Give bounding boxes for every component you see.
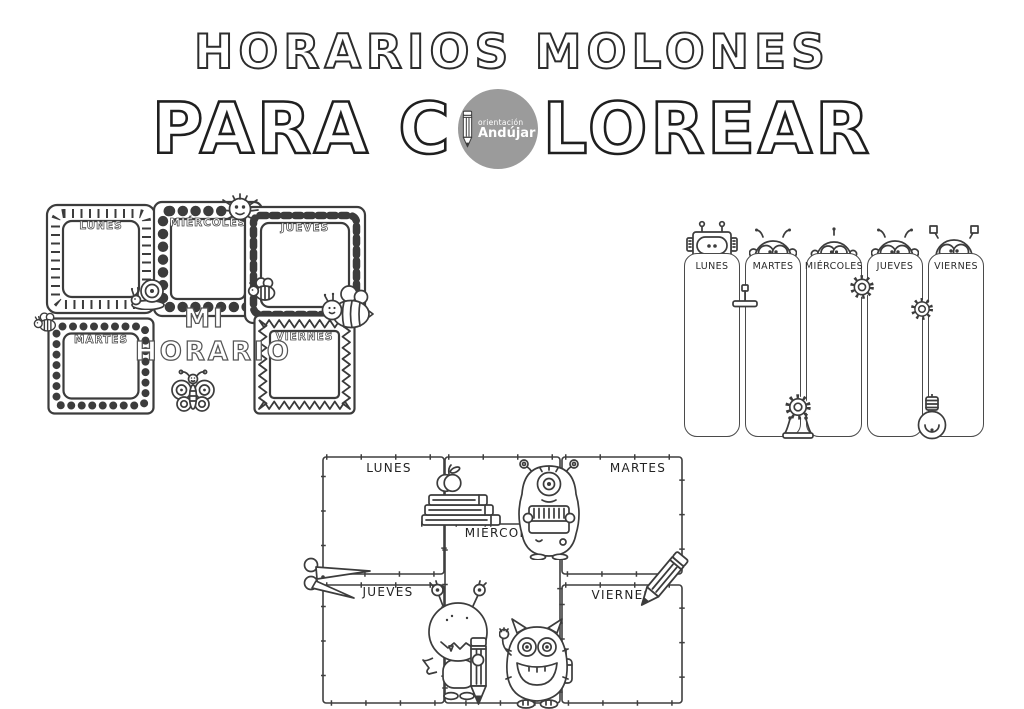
gear-icon [909, 296, 935, 322]
grid-lunes-label: LUNES [333, 461, 445, 475]
subtitle-prefix: PARA C [152, 88, 453, 170]
big-bee-icon [320, 284, 374, 330]
bighead-monster-icon [419, 580, 503, 708]
page-title: HORARIOS MOLONES [0, 24, 1024, 82]
bee-icon [247, 277, 279, 301]
coloring-page: HORARIOS MOLONES PARA C orientación Andú… [0, 0, 1024, 709]
grid-martes-label: MARTES [582, 461, 694, 475]
cyclops-monster-icon [516, 454, 582, 560]
furry-monster-icon [499, 613, 575, 709]
frame-lunes-label: LUNES [45, 220, 157, 232]
logo-line2: Andújar [478, 126, 536, 141]
subtitle-suffix: LOREAR [543, 88, 872, 170]
logo-pencil-icon [460, 110, 475, 148]
heading-line-horario: HORARIO [135, 336, 275, 369]
lever-icon [732, 284, 758, 310]
column-lunes: LUNES [684, 253, 740, 437]
apple-icon [436, 463, 462, 493]
lightbulb-icon [916, 394, 948, 442]
gear-icon [848, 273, 876, 301]
column-jueves-label: JUEVES [877, 261, 914, 436]
frame-jueves-label: JUEVES [243, 222, 367, 234]
bee-icon [33, 312, 59, 332]
logo-text: orientación Andújar [478, 118, 536, 141]
spider-icon [220, 189, 260, 225]
butterfly-icon [170, 367, 216, 419]
header: HORARIOS MOLONES PARA C orientación Andú… [0, 24, 1024, 170]
logo-badge: orientación Andújar [458, 89, 538, 169]
snail-icon [129, 276, 167, 310]
left-schedule-heading: MI HORARIO [135, 303, 275, 369]
scissors-icon [302, 550, 374, 606]
books-icon [421, 490, 501, 526]
gear-stand-icon [780, 392, 816, 442]
column-lunes-label: LUNES [696, 261, 729, 436]
page-subtitle: PARA C orientación Andújar LOREAR [0, 88, 1024, 170]
